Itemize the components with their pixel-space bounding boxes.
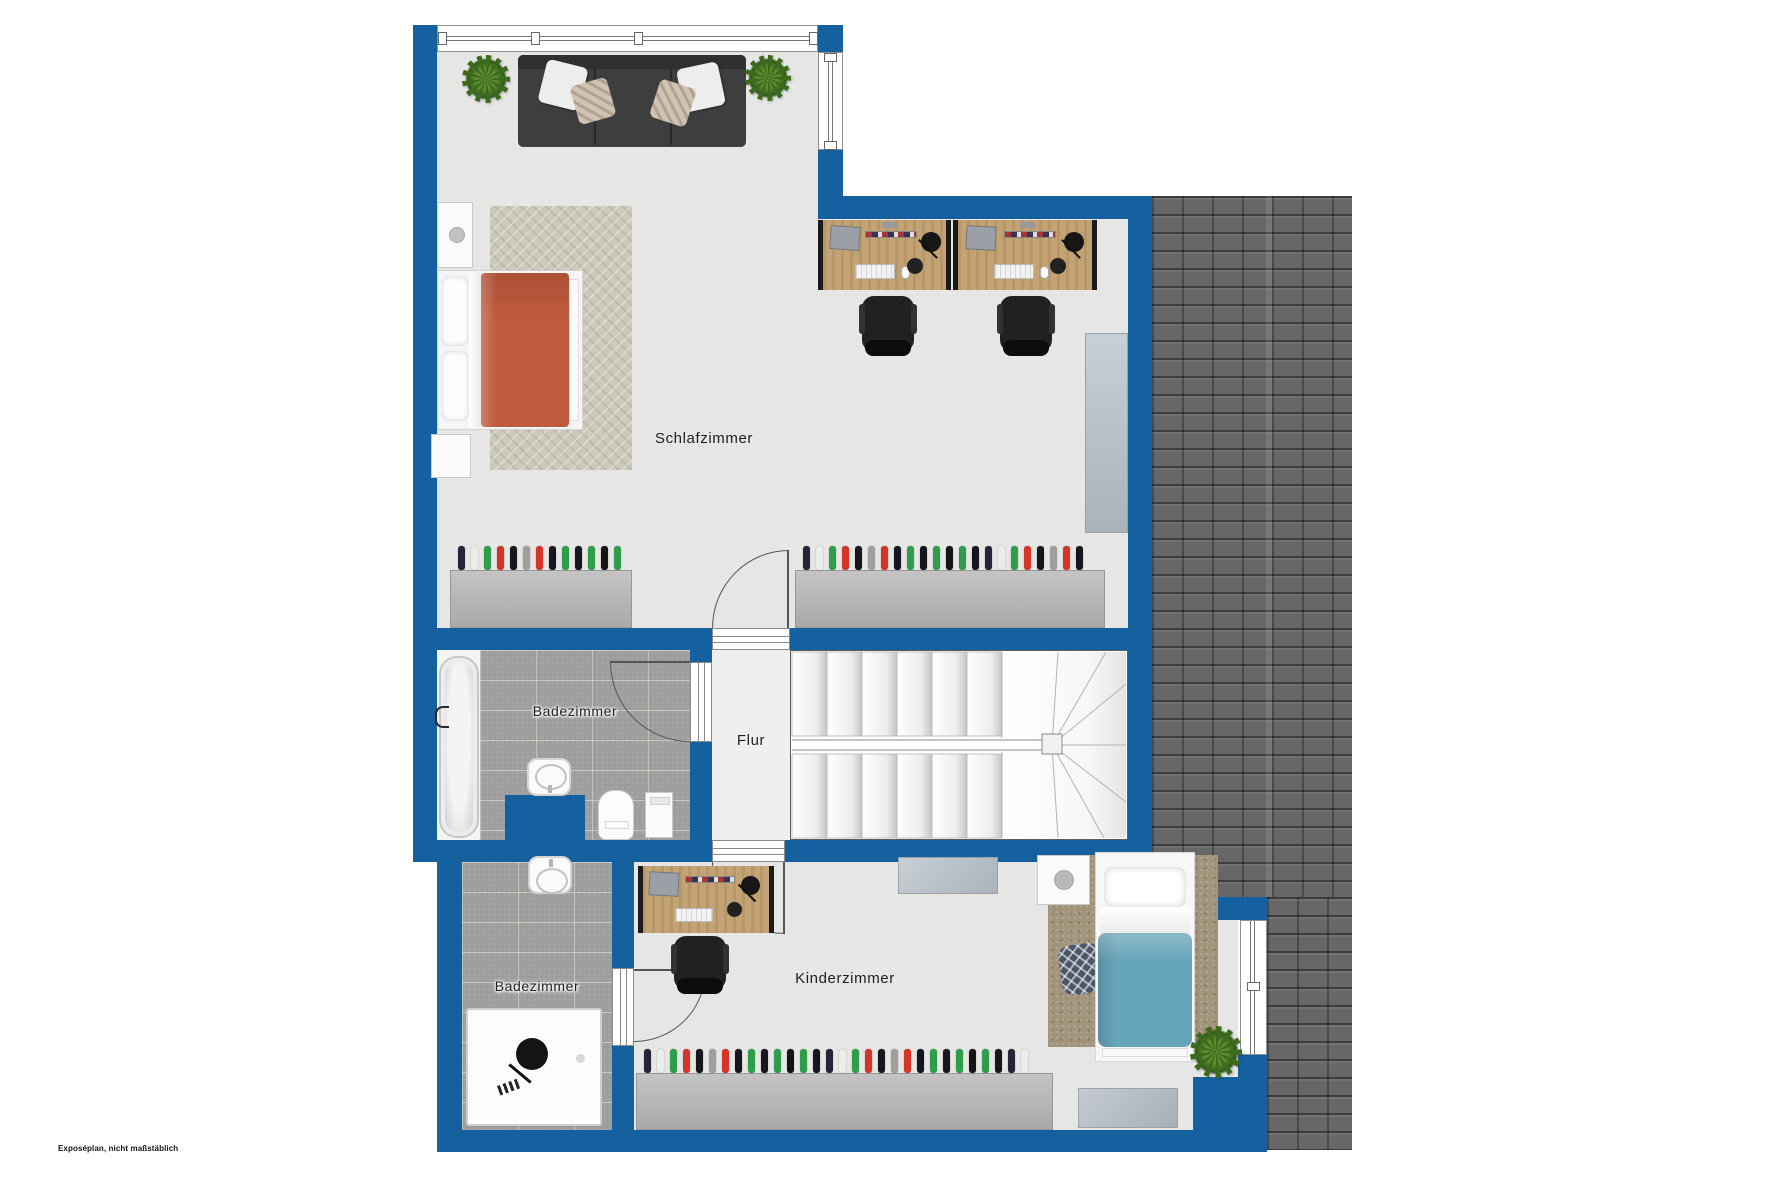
clothes-hanger-icon: [774, 1049, 781, 1073]
clothes-hanger-icon: [946, 546, 953, 570]
door-sill-schlafzimmer-flur: [712, 628, 790, 650]
sink: [528, 856, 572, 894]
clothes-hanger-icon: [982, 1049, 989, 1073]
nightstand: [1037, 855, 1090, 905]
bed-footboard: [1102, 1048, 1188, 1057]
clothes-hanger-icon: [907, 546, 914, 570]
clothes-hanger-icon: [894, 546, 901, 570]
desk-lamp-base-icon: [907, 258, 923, 274]
staircase: [790, 650, 1128, 840]
clothes-hanger-icon: [614, 546, 621, 570]
roof-area-lower: [1267, 897, 1352, 1150]
clothes-hanger-icon: [575, 546, 582, 570]
sink-basin: [536, 868, 568, 894]
office-chair: [1000, 296, 1052, 352]
clothes-hanger-icon: [1024, 546, 1031, 570]
clothes-hanger-icon: [920, 546, 927, 570]
clothes-hanger-icon: [868, 546, 875, 570]
clothes-hanger-icon: [709, 1049, 716, 1073]
chair-armrest: [859, 304, 865, 334]
washing-machine: [645, 792, 673, 838]
clothes-hanger-icon: [891, 1049, 898, 1073]
room-label-schlafzimmer: Schlafzimmer: [604, 430, 804, 447]
footnote-text: Exposéplan, nicht maßstäblich: [58, 1144, 178, 1153]
single-bed: [1095, 852, 1195, 1062]
clothes-hanger-icon: [1008, 1049, 1015, 1073]
clothes-hanger-icon: [471, 546, 478, 570]
clothes-hanger-icon: [930, 1049, 937, 1073]
clothes-hanger-icon: [1037, 546, 1044, 570]
window-mullion-icon: [824, 141, 837, 150]
shower: [466, 1008, 602, 1126]
room-label-badezimmer-top: Badezimmer: [480, 703, 670, 719]
clothes-hanger-icon: [800, 1049, 807, 1073]
wall-outer-right: [1128, 219, 1152, 920]
clothes-hanger-icon: [881, 546, 888, 570]
wall-outer-bottom: [437, 1130, 1267, 1152]
office-chair: [674, 936, 726, 990]
laptop-icon: [648, 871, 679, 897]
clothes-hanger-icon: [562, 546, 569, 570]
clothes-hanger-icon: [917, 1049, 924, 1073]
washing-machine-panel: [650, 797, 670, 805]
window-schlafzimmer-right: [818, 52, 843, 150]
clothes-hanger-icon: [813, 1049, 820, 1073]
clothes-hanger-icon: [985, 546, 992, 570]
wall-schlafzimmer-bottom-right: [790, 628, 1128, 650]
chair-backrest: [1003, 340, 1049, 356]
desk: [818, 220, 951, 290]
clothes-hanger-icon: [722, 1049, 729, 1073]
clothes-hanger-icon: [816, 546, 823, 570]
hanger-row: [803, 546, 1083, 570]
clothes-hanger-icon: [803, 546, 810, 570]
chair-armrest: [1049, 304, 1055, 334]
clothes-hanger-icon: [696, 1049, 703, 1073]
wall-sink-stub: [505, 795, 585, 840]
clothes-hanger-icon: [510, 546, 517, 570]
clothes-hanger-icon: [904, 1049, 911, 1073]
desk-ruler-icon: [1004, 231, 1056, 238]
bed-pillow: [441, 351, 469, 421]
window-mullion-icon: [824, 53, 837, 62]
window-mullion-icon: [634, 32, 643, 45]
shower-drain-icon: [497, 1079, 521, 1096]
laptop-icon: [829, 225, 861, 251]
clothes-hanger-icon: [761, 1049, 768, 1073]
wall-upper-right-vertical: [818, 150, 843, 219]
bench: [1078, 1088, 1178, 1128]
chair-armrest: [997, 304, 1003, 334]
clothes-hanger-icon: [735, 1049, 742, 1073]
clothes-hanger-icon: [933, 546, 940, 570]
wall-corner-topright: [818, 25, 843, 52]
sofa-pillow-patterned: [569, 77, 617, 126]
wall-outer-left-lower: [437, 840, 462, 1152]
chair-backrest: [677, 978, 723, 994]
desk-ruler-icon: [865, 231, 917, 238]
room-label-flur: Flur: [712, 732, 790, 749]
desk: [638, 866, 774, 933]
shower-dot-icon: [576, 1054, 585, 1063]
clothes-hanger-icon: [839, 1049, 846, 1073]
door-leaf-schlafzimmer-flur: [787, 550, 789, 628]
desk-ruler-icon: [685, 876, 735, 883]
desk-lamp-base-icon: [1050, 258, 1066, 274]
door-sill-badezimmer-top: [690, 662, 712, 742]
wardrobe-rail: [636, 1073, 1053, 1130]
mouse-icon: [1040, 266, 1049, 279]
clothes-hanger-icon: [644, 1049, 651, 1073]
clothes-hanger-icon: [855, 546, 862, 570]
desk: [953, 220, 1097, 290]
desk-lamp-icon: [921, 232, 941, 252]
clothes-hanger-icon: [1063, 546, 1070, 570]
sofa: [518, 55, 746, 147]
double-bed: [437, 270, 583, 430]
clothes-hanger-icon: [484, 546, 491, 570]
nightstand: [431, 434, 471, 478]
chair-armrest: [723, 944, 729, 974]
wall-bay-below-window: [1238, 1055, 1267, 1077]
toilet: [598, 790, 634, 840]
clothes-hanger-icon: [998, 546, 1005, 570]
clothes-hanger-icon: [959, 546, 966, 570]
desk-lamp-icon: [1064, 232, 1084, 252]
clothes-hanger-icon: [969, 1049, 976, 1073]
door-leaf-badezimmer-top: [610, 661, 690, 663]
clothes-hanger-icon: [878, 1049, 885, 1073]
bed-pillow: [1104, 867, 1186, 907]
window-mullion-icon: [531, 32, 540, 45]
clothes-hanger-icon: [826, 1049, 833, 1073]
window-mullion-icon: [809, 32, 818, 45]
bed-pillow: [441, 276, 469, 346]
shower-head-icon: [516, 1038, 548, 1070]
chair-armrest: [671, 944, 677, 974]
wall-upper-right-horizontal: [843, 196, 1152, 219]
keyboard-icon: [675, 908, 713, 922]
clothes-hanger-icon: [943, 1049, 950, 1073]
clothes-hanger-icon: [458, 546, 465, 570]
bed-duvet: [1098, 933, 1192, 1047]
potted-plant-icon: [745, 55, 791, 101]
door-leaf-flur-kinderzimmer: [783, 862, 785, 934]
keyboard-icon: [855, 264, 895, 279]
desk-clamp-icon: [881, 222, 897, 228]
sideboard: [1085, 333, 1128, 533]
clothes-hanger-icon: [601, 546, 608, 570]
room-label-kinderzimmer: Kinderzimmer: [745, 970, 945, 987]
clothes-hanger-icon: [670, 1049, 677, 1073]
office-chair: [862, 296, 914, 352]
toilet-seat-line: [605, 821, 629, 829]
floorplan-canvas: Schlafzimmer Badezimmer Flur Badezimmer …: [0, 0, 1772, 1181]
desk-lamp-base-icon: [727, 902, 742, 917]
clothes-hanger-icon: [1050, 546, 1057, 570]
keyboard-icon: [994, 264, 1034, 279]
clothes-hanger-icon: [829, 546, 836, 570]
clothes-hanger-icon: [865, 1049, 872, 1073]
window-mullion-icon: [438, 32, 447, 45]
nightstand: [437, 202, 473, 268]
wardrobe-rail: [450, 570, 632, 628]
wall-schlafzimmer-bottom-left: [413, 628, 712, 650]
wall-bay-corner-block: [1193, 1077, 1267, 1130]
clothes-hanger-icon: [549, 546, 556, 570]
bathtub: [439, 656, 479, 838]
desk-clamp-icon: [1020, 222, 1036, 228]
window-kinderzimmer-right: [1240, 920, 1267, 1055]
wardrobe-rail: [795, 570, 1105, 628]
bathtub-basin: [445, 662, 473, 832]
nightstand-knob-icon: [1054, 870, 1074, 890]
clothes-hanger-icon: [748, 1049, 755, 1073]
dresser: [898, 857, 998, 894]
clothes-hanger-icon: [523, 546, 530, 570]
clothes-hanger-icon: [852, 1049, 859, 1073]
clothes-hanger-icon: [956, 1049, 963, 1073]
potted-plant-icon: [1190, 1026, 1242, 1078]
chair-backrest: [865, 340, 911, 356]
window-mullion-icon: [1247, 982, 1260, 991]
door-sill-flur-kinderzimmer: [712, 840, 785, 862]
roof-area: [1152, 196, 1352, 897]
clothes-hanger-icon: [657, 1049, 664, 1073]
clothes-hanger-icon: [683, 1049, 690, 1073]
sink: [527, 758, 571, 796]
nightstand-knob-icon: [449, 227, 465, 243]
chair-armrest: [911, 304, 917, 334]
clothes-hanger-icon: [842, 546, 849, 570]
sink-faucet-icon: [549, 859, 553, 867]
clothes-hanger-icon: [1021, 1049, 1028, 1073]
clothes-hanger-icon: [1076, 546, 1083, 570]
roof-ridge-line: [1266, 196, 1272, 897]
clothes-hanger-icon: [536, 546, 543, 570]
sink-faucet-icon: [548, 785, 552, 793]
room-label-badezimmer-bottom: Badezimmer: [447, 978, 627, 994]
clothes-hanger-icon: [1011, 546, 1018, 570]
clothes-hanger-icon: [787, 1049, 794, 1073]
clothes-hanger-icon: [588, 546, 595, 570]
laptop-icon: [965, 225, 996, 251]
hanger-row: [644, 1049, 1028, 1073]
clothes-hanger-icon: [972, 546, 979, 570]
clothes-hanger-icon: [995, 1049, 1002, 1073]
bathtub-faucet-icon: [435, 706, 449, 728]
hanger-row: [458, 546, 621, 570]
window-schlafzimmer-top: [437, 25, 818, 52]
bed-duvet: [481, 273, 569, 427]
clothes-hanger-icon: [497, 546, 504, 570]
potted-plant-icon: [462, 55, 510, 103]
bed-footboard: [569, 279, 579, 421]
